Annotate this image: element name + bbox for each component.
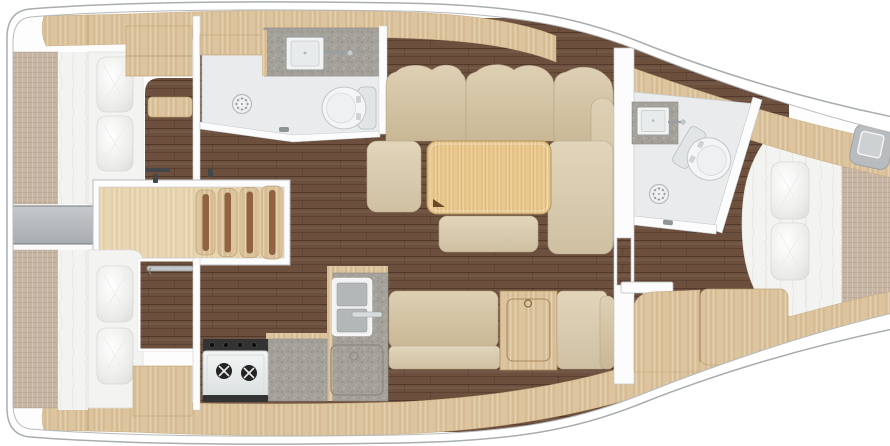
shower-drain-icon (233, 95, 252, 114)
aft-cabin-starboard (6, 250, 200, 416)
wood-step-unit (634, 290, 700, 372)
settee-back-cushion (386, 65, 466, 141)
hanging-locker (139, 260, 197, 350)
cabin-floor (145, 78, 197, 180)
locker-cabinet (133, 366, 192, 416)
bench (439, 216, 538, 252)
doorway (617, 238, 631, 285)
stool (367, 141, 421, 212)
stern-locker-top (42, 14, 130, 46)
berth-cover (6, 250, 58, 408)
bulkhead-wall (614, 48, 634, 384)
counter-trim (262, 30, 267, 76)
faucet-knob (681, 120, 685, 124)
settee-seat (548, 141, 613, 254)
stove-knob (224, 343, 229, 348)
stove-knob (238, 343, 243, 348)
washbasin (286, 37, 324, 70)
toilet (322, 87, 376, 129)
wood-step (148, 97, 192, 117)
aft-head (200, 26, 387, 142)
locker-cabinet (500, 291, 557, 370)
settee-back-cushion (466, 65, 554, 141)
washbasin (637, 107, 669, 135)
settee-side-back (600, 296, 614, 369)
clothes-rail (147, 266, 193, 271)
stove (203, 339, 268, 402)
stove-knob (252, 343, 257, 348)
floor-plan (0, 0, 890, 446)
walkway-deck (13, 206, 93, 244)
floor-plan-svg (0, 0, 890, 446)
worktop (268, 339, 327, 401)
door-handle (279, 127, 289, 132)
saloon-table (427, 141, 551, 214)
berth-sheet (58, 250, 88, 410)
settee-seat (389, 346, 500, 369)
burner-icon (216, 363, 232, 379)
settee-seat (557, 291, 607, 369)
faucet-knob (347, 50, 353, 56)
stern-walkway (13, 197, 93, 253)
counter-trim (327, 266, 388, 273)
bathroom-cabinet (200, 35, 266, 55)
burner-icon (241, 365, 257, 381)
shower-drain-icon (650, 185, 669, 204)
berth-sheet (58, 52, 88, 204)
cabin-bulkhead (193, 16, 200, 182)
settee-back-cushion (389, 291, 498, 348)
cabin-bulkhead (193, 258, 200, 410)
stove-knob (210, 343, 215, 348)
locker-cabinet (126, 26, 192, 76)
faucet (352, 312, 382, 317)
berth-cover (6, 52, 58, 204)
counter-trim (266, 333, 328, 339)
